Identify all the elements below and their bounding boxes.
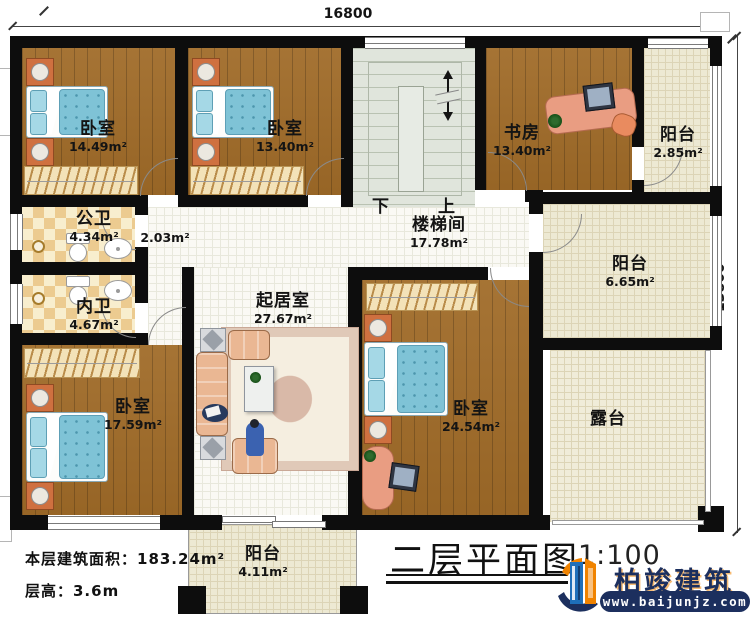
nightstand-lamp-icon — [192, 58, 220, 86]
nightstand-lamp-icon — [192, 138, 220, 166]
sliding-door-panel — [272, 521, 326, 528]
window-balcony-tr-top — [648, 38, 708, 49]
terrace-corner-post — [698, 506, 724, 532]
armchair-icon — [228, 330, 270, 360]
window-stair-top — [365, 37, 465, 49]
nightstand-lamp-icon — [26, 482, 54, 510]
room-area: 27.67m² — [223, 312, 343, 326]
window-balcony-right — [712, 216, 722, 326]
floor-height-text: 层高：3.6m — [25, 580, 119, 601]
pillow-icon — [30, 90, 47, 112]
room-label-hallway: 2.03m² — [130, 231, 200, 245]
room-label-bedroom-tm: 卧室 13.40m² — [235, 120, 335, 154]
plant-icon — [364, 450, 376, 462]
north-slash-mark — [727, 34, 737, 44]
stair-landing-strip — [398, 86, 424, 192]
wall-bottom — [10, 515, 48, 530]
room-label-public-bath: 公卫 4.34m² — [44, 210, 144, 244]
terrace-floor — [550, 350, 708, 522]
room-name: 起居室 — [223, 292, 343, 312]
room-area: 24.54m² — [411, 420, 531, 434]
sofa-icon — [196, 352, 228, 436]
pillow-icon — [30, 417, 47, 447]
room-name: 卧室 — [411, 400, 531, 420]
wall-bath-divider — [10, 262, 148, 275]
floor-plan-canvas: 16800 13800 下 上 — [0, 0, 750, 622]
wall-bedrooms-bottom — [10, 195, 140, 207]
dimension-line-top — [12, 26, 722, 27]
room-area: 17.78m² — [379, 236, 499, 250]
window-bedroom-bl-bottom — [48, 516, 160, 530]
nightstand-lamp-icon — [364, 314, 392, 342]
room-area: 14.49m² — [48, 140, 148, 154]
logo-icon — [552, 552, 610, 618]
room-name: 楼梯间 — [379, 216, 499, 236]
wardrobe-icon — [24, 348, 140, 378]
stair-down-label: 下 — [372, 192, 389, 217]
wall-study-right — [632, 180, 644, 192]
dimension-top-label: 16800 — [300, 6, 396, 22]
wall-bedroom-br-top — [353, 267, 488, 280]
room-label-bedroom-bl: 卧室 17.59m² — [73, 398, 193, 432]
nightstand-lamp-icon — [26, 58, 54, 86]
pillow-icon — [196, 113, 213, 135]
room-name: 书房 — [472, 124, 572, 144]
person-standing-icon — [246, 422, 264, 456]
person-sitting-icon — [202, 404, 228, 422]
room-name: 内卫 — [44, 298, 144, 318]
room-area: 4.67m² — [44, 318, 144, 332]
room-label-bedroom-br: 卧室 24.54m² — [411, 400, 531, 434]
arrow-down-head — [443, 112, 453, 121]
wall-left — [10, 36, 22, 530]
room-label-balcony-r: 阳台 6.65m² — [570, 255, 690, 289]
room-area: 17.59m² — [73, 418, 193, 432]
terrace-rail-bottom — [552, 520, 704, 525]
room-label-bedroom-tl: 卧室 14.49m² — [48, 120, 148, 154]
nightstand-lamp-icon — [364, 416, 392, 444]
logo-website: www.baijunjz.com — [600, 591, 750, 612]
room-name: 阳台 — [570, 255, 690, 275]
wall-bedroom-br-right — [529, 252, 543, 515]
room-label-private-bath: 内卫 4.67m² — [44, 298, 144, 332]
room-name: 卧室 — [73, 398, 193, 418]
window-private-bath — [10, 284, 23, 324]
wall-bottom — [322, 515, 550, 530]
room-area: 2.85m² — [628, 146, 728, 160]
room-label-stair-hall: 楼梯间 17.78m² — [379, 216, 499, 250]
room-area: 13.40m² — [472, 144, 572, 158]
room-label-terrace: 露台 — [548, 410, 668, 430]
wardrobe-icon — [190, 166, 304, 195]
room-name: 露台 — [548, 410, 668, 430]
wall-bedroom-br-right — [529, 204, 543, 214]
room-area: 6.65m² — [570, 275, 690, 289]
pillow-icon — [30, 448, 47, 478]
computer-monitor-icon — [583, 82, 616, 111]
room-label-balcony-tr: 阳台 2.85m² — [628, 126, 728, 160]
wall-bath-right — [135, 247, 148, 303]
balcony-post — [340, 586, 368, 614]
pillow-icon — [196, 90, 213, 112]
pillow-icon — [368, 380, 385, 412]
side-table-icon — [200, 436, 226, 460]
pillow-icon — [368, 347, 385, 379]
toilet-icon — [69, 243, 87, 262]
wall-stair-right — [475, 48, 486, 190]
room-name: 阳台 — [628, 126, 728, 146]
room-name: 卧室 — [235, 120, 335, 140]
computer-monitor-icon — [388, 462, 419, 492]
flower-vase-icon — [250, 372, 261, 383]
wall-living-left — [182, 267, 194, 515]
wardrobe-icon — [366, 283, 478, 311]
room-area: 4.34m² — [44, 230, 144, 244]
room-name: 卧室 — [48, 120, 148, 140]
nightstand-lamp-icon — [26, 384, 54, 412]
side-table-icon — [200, 328, 226, 352]
wardrobe-icon — [24, 166, 138, 195]
wall-bottom — [160, 515, 222, 530]
title-underline — [386, 574, 568, 576]
wall-right — [710, 36, 722, 66]
corner-mark — [700, 12, 730, 32]
wall-balcony-right-top — [529, 192, 722, 204]
wall-bedrooms-bottom — [178, 195, 308, 207]
room-name: 公卫 — [44, 210, 144, 230]
room-area: 13.40m² — [235, 140, 335, 154]
north-slash-mark — [39, 6, 49, 16]
window-public-bath — [10, 214, 23, 250]
stair-up-label: 上 — [438, 192, 455, 217]
room-label-study: 书房 13.40m² — [472, 124, 572, 158]
arrow-up-head — [443, 70, 453, 79]
room-area: 2.03m² — [130, 231, 200, 245]
dimension-line-right — [737, 36, 738, 533]
floor-area-text: 本层建筑面积：183.24m² — [25, 548, 225, 569]
pillow-icon — [30, 113, 47, 135]
balcony-post — [178, 586, 206, 614]
title-underline — [386, 581, 568, 584]
sliding-door-panel — [222, 516, 276, 523]
room-label-living: 起居室 27.67m² — [223, 292, 343, 326]
wall-study-bottom — [525, 190, 543, 202]
terrace-rail-right — [705, 350, 711, 512]
wall-terrace-top — [543, 338, 722, 350]
